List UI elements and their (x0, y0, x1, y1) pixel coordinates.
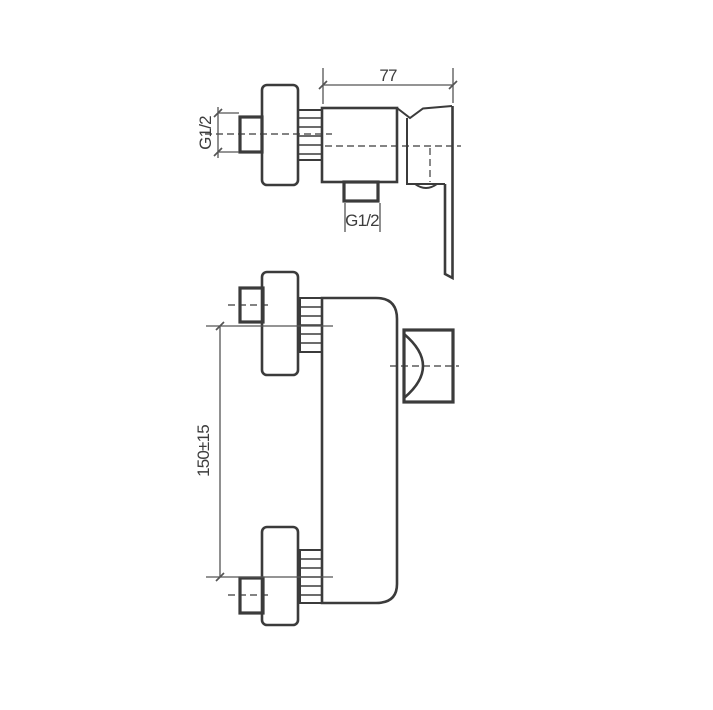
front-view (228, 272, 459, 625)
front-view-top-escutcheon (262, 272, 298, 375)
front-view-body (322, 298, 397, 603)
drawing-svg: 77 G1/2 G1/2 150±15 (0, 0, 713, 710)
top-view-bonnet-side (407, 118, 445, 184)
top-view-escutcheon (262, 85, 298, 185)
top-view-thread-lines (298, 118, 322, 154)
front-view-bottom-escutcheon (262, 527, 298, 625)
height-dimension-label: 150±15 (194, 425, 213, 477)
dimension-height-150 (206, 322, 333, 581)
top-view-lever (445, 106, 453, 278)
dimensions (206, 68, 457, 581)
top-view-bonnet-top (397, 106, 452, 118)
top-view-body (322, 108, 397, 182)
outlet-thread-label: G1/2 (345, 211, 379, 230)
inlet-thread-label: G1/2 (196, 116, 215, 150)
top-view (205, 85, 461, 278)
dim150-extension-lines (206, 326, 333, 577)
drawing-lines (205, 68, 461, 625)
front-view-top-thread-lines (300, 307, 322, 343)
technical-drawing-canvas: 77 G1/2 G1/2 150±15 (0, 0, 713, 710)
dim-inlet-extension-lines (218, 113, 239, 152)
dimension-inlet-thread (214, 107, 239, 158)
width-dimension-label: 77 (379, 66, 397, 85)
top-view-outlet (344, 182, 378, 201)
